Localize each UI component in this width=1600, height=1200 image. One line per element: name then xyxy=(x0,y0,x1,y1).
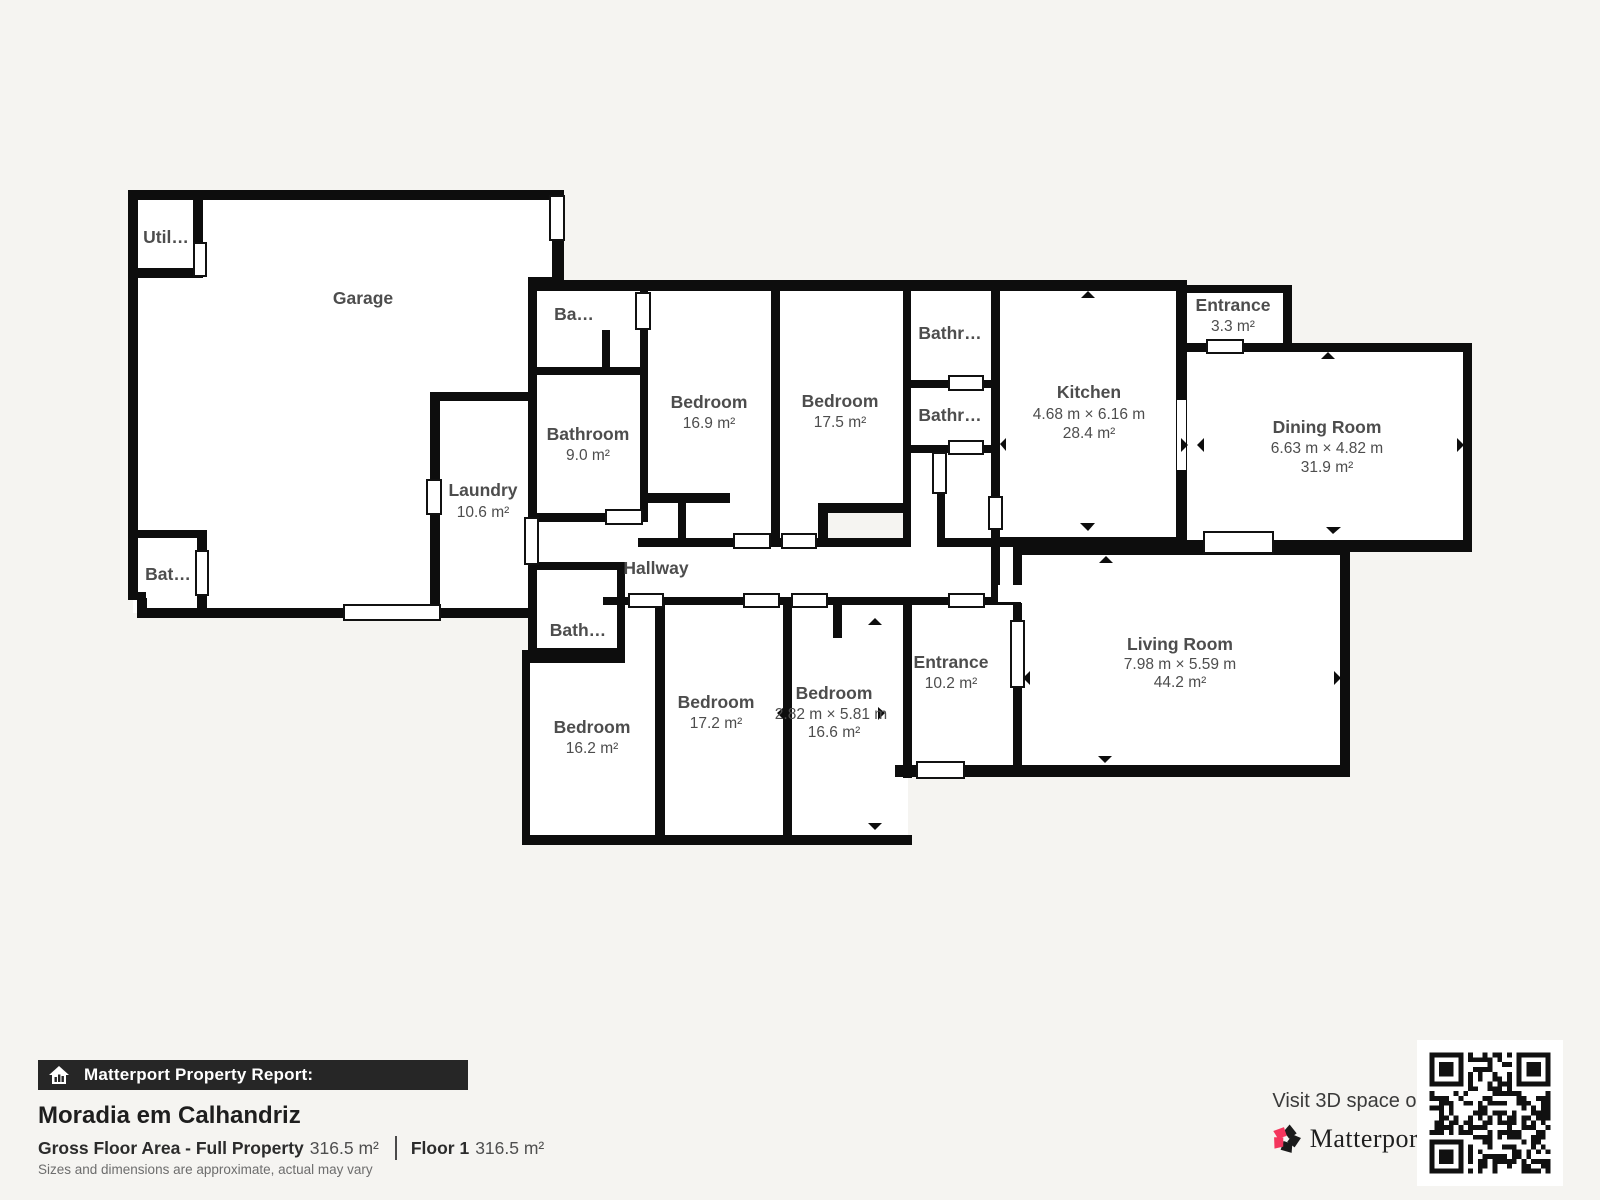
divider xyxy=(395,1136,397,1160)
floor1-value: 316.5 m² xyxy=(475,1138,544,1159)
room-label-bedroom1: Bedroom xyxy=(671,392,748,412)
report-bar-title: Matterport Property Report: xyxy=(84,1065,313,1085)
room-label-garage: Garage xyxy=(333,288,394,308)
matterport-logo-icon xyxy=(1270,1123,1302,1155)
room-area-bedroom5: 16.6 m² xyxy=(808,724,861,741)
room-area-laundry: 10.6 m² xyxy=(457,504,510,521)
room-area-bedroom1: 16.9 m² xyxy=(683,415,736,432)
floor1-label: Floor 1 xyxy=(411,1138,469,1159)
room-label-bathr-upper: Bathr… xyxy=(918,323,981,343)
room-label-ba: Ba… xyxy=(554,304,594,324)
gross-floor-label: Gross Floor Area - Full Property xyxy=(38,1138,304,1159)
matterport-floor-plan-report: Util… Garage Bat… Laundry 10.6 m² Ba… Ba… xyxy=(0,0,1600,1200)
room-label-hallway: Hallway xyxy=(623,558,688,578)
room-area-entrance-top: 3.3 m² xyxy=(1211,318,1255,335)
disclaimer-text: Sizes and dimensions are approximate, ac… xyxy=(38,1162,373,1177)
matterport-wordmark: Matterport xyxy=(1310,1124,1426,1154)
room-label-entrance-top: Entrance xyxy=(1196,295,1271,315)
room-label-entrance-main: Entrance xyxy=(914,652,989,672)
qr-code xyxy=(1417,1040,1563,1186)
house-icon xyxy=(48,1065,70,1085)
floor-plan: Util… Garage Bat… Laundry 10.6 m² Ba… Ba… xyxy=(0,0,1600,1200)
room-area-bedroom3: 16.2 m² xyxy=(566,740,619,757)
room-label-bedroom2: Bedroom xyxy=(802,391,879,411)
room-area-bedroom4: 17.2 m² xyxy=(690,715,743,732)
room-label-bathroom: Bathroom xyxy=(547,424,630,444)
room-label-bath-hall: Bath… xyxy=(550,620,606,640)
property-name: Moradia em Calhandriz xyxy=(38,1102,301,1130)
room-area-bathroom: 9.0 m² xyxy=(566,447,610,464)
room-label-living: Living Room xyxy=(1127,634,1233,654)
report-bar: Matterport Property Report: xyxy=(38,1060,468,1090)
room-area-bedroom2: 17.5 m² xyxy=(814,414,867,431)
room-dims-living: 7.98 m × 5.59 m xyxy=(1124,656,1236,673)
room-label-bathr-lower: Bathr… xyxy=(918,405,981,425)
room-area-kitchen: 28.4 m² xyxy=(1063,425,1116,442)
room-label-bedroom5: Bedroom xyxy=(796,683,873,703)
room-label-bedroom3: Bedroom xyxy=(554,717,631,737)
room-label-bat: Bat… xyxy=(145,564,191,584)
room-area-entrance-main: 10.2 m² xyxy=(925,675,978,692)
room-label-kitchen: Kitchen xyxy=(1057,382,1121,402)
floor-area-line: Gross Floor Area - Full Property 316.5 m… xyxy=(38,1136,546,1160)
room-label-bedroom4: Bedroom xyxy=(678,692,755,712)
room-area-living: 44.2 m² xyxy=(1154,674,1207,691)
gross-floor-value: 316.5 m² xyxy=(310,1138,379,1159)
room-dims-dining: 6.63 m × 4.82 m xyxy=(1271,440,1383,457)
room-label-laundry: Laundry xyxy=(448,480,517,500)
room-dims-bedroom5: 2.82 m × 5.81 m xyxy=(775,706,887,723)
room-label-dining: Dining Room xyxy=(1273,417,1382,437)
room-label-utility: Util… xyxy=(143,227,189,247)
room-dims-kitchen: 4.68 m × 6.16 m xyxy=(1033,406,1145,423)
room-area-dining: 31.9 m² xyxy=(1301,459,1354,476)
